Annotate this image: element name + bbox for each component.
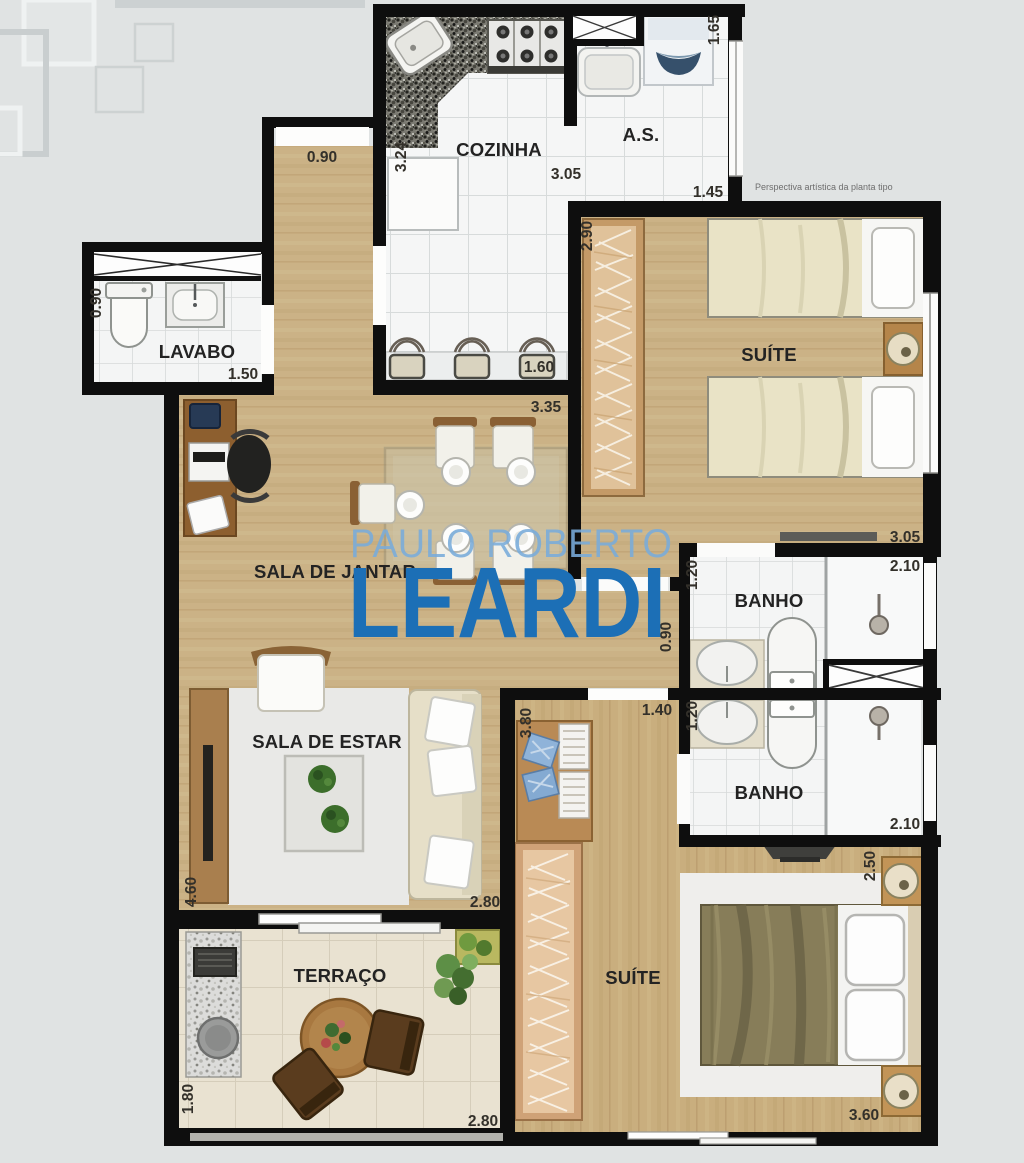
svg-text:LEARDI: LEARDI	[348, 547, 666, 659]
svg-text:3.05: 3.05	[551, 166, 582, 183]
svg-text:3.60: 3.60	[849, 1107, 879, 1124]
svg-text:4.60: 4.60	[183, 877, 200, 907]
svg-text:SUÍTE: SUÍTE	[605, 967, 660, 988]
svg-text:TERRAÇO: TERRAÇO	[294, 965, 387, 986]
svg-text:3.24: 3.24	[393, 142, 410, 173]
svg-text:COZINHA: COZINHA	[456, 139, 542, 160]
svg-text:2.80: 2.80	[470, 894, 500, 911]
svg-text:1.40: 1.40	[642, 702, 672, 719]
svg-text:2.10: 2.10	[890, 816, 920, 833]
svg-text:3.35: 3.35	[531, 399, 562, 416]
svg-text:2.80: 2.80	[468, 1113, 498, 1130]
svg-text:1.50: 1.50	[228, 366, 258, 383]
svg-text:1.60: 1.60	[524, 359, 554, 376]
svg-text:3.80: 3.80	[518, 708, 535, 738]
svg-text:Perspectiva artística da plant: Perspectiva artística da planta tipo	[755, 182, 893, 192]
svg-text:0.90: 0.90	[88, 288, 105, 318]
svg-text:1.45: 1.45	[693, 184, 724, 201]
svg-text:A.S.: A.S.	[623, 124, 660, 145]
svg-text:1.20: 1.20	[684, 560, 701, 590]
svg-text:2.50: 2.50	[862, 851, 879, 881]
svg-text:1.65: 1.65	[706, 15, 723, 46]
svg-text:LAVABO: LAVABO	[159, 341, 236, 362]
svg-text:2.90: 2.90	[579, 221, 596, 251]
svg-text:SUÍTE: SUÍTE	[741, 344, 796, 365]
svg-text:BANHO: BANHO	[735, 782, 804, 803]
svg-text:0.90: 0.90	[307, 149, 337, 166]
svg-text:3.05: 3.05	[890, 529, 921, 546]
svg-text:1.80: 1.80	[180, 1084, 197, 1114]
svg-text:1.20: 1.20	[684, 701, 701, 731]
svg-text:SALA DE ESTAR: SALA DE ESTAR	[252, 731, 402, 752]
svg-text:BANHO: BANHO	[735, 590, 804, 611]
svg-text:2.10: 2.10	[890, 558, 920, 575]
